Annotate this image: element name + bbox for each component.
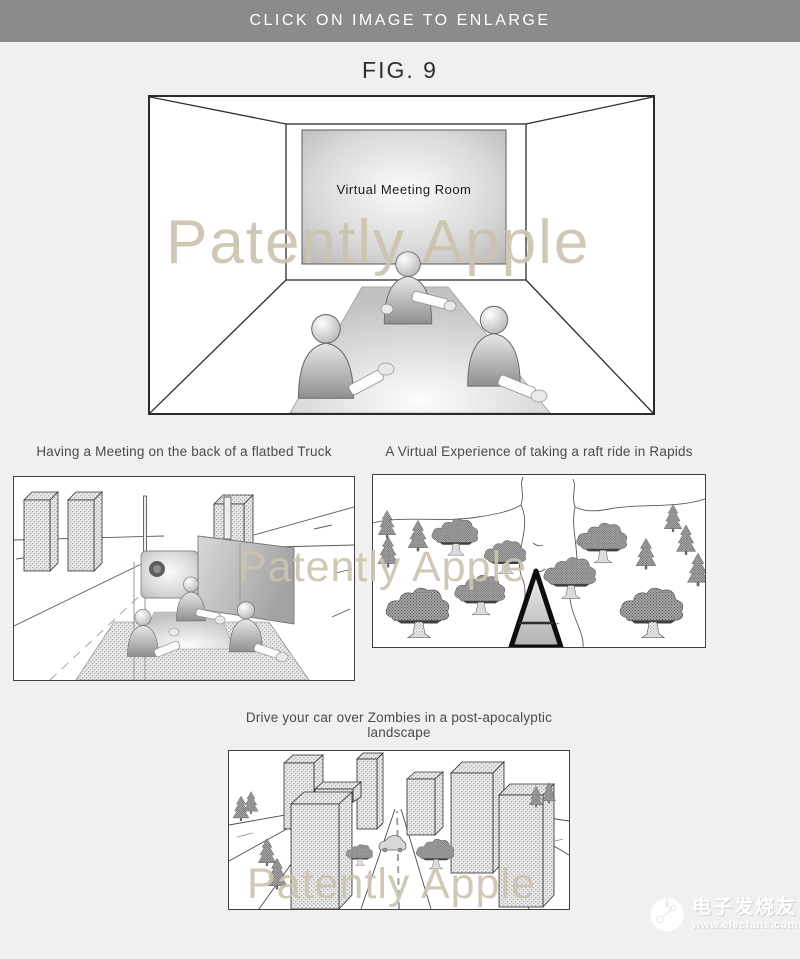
- caption-truck: Having a Meeting on the back of a flatbe…: [13, 444, 355, 459]
- site-name: 电子发烧友: [692, 897, 798, 919]
- site-url: www.elecfans.com: [692, 919, 798, 932]
- zombie-city-drawing: [229, 751, 569, 909]
- building: [284, 753, 554, 909]
- car: [379, 836, 406, 853]
- meeting-room-screen: Virtual Meeting Room: [302, 130, 506, 264]
- patent-figure-flatbed-truck[interactable]: [13, 476, 355, 681]
- patent-figure-zombie-city[interactable]: [228, 750, 570, 910]
- enlarge-banner: CLICK ON IMAGE TO ENLARGE: [0, 0, 800, 42]
- caption-rapids: A Virtual Experience of taking a raft ri…: [372, 444, 706, 459]
- rapids-drawing: [373, 475, 705, 647]
- flatbed-truck-drawing: [14, 477, 354, 680]
- caption-zombies: Drive your car over Zombies in a post-ap…: [228, 710, 570, 740]
- elecfans-logo-icon: [648, 889, 686, 939]
- figure-title: FIG. 9: [0, 57, 800, 84]
- site-watermark-badge: 电子发烧友 www.elecfans.com: [648, 880, 798, 948]
- enlarge-banner-label: CLICK ON IMAGE TO ENLARGE: [249, 12, 550, 30]
- meeting-room-drawing: Virtual Meeting Room: [150, 97, 653, 413]
- patent-figure-rapids[interactable]: [372, 474, 706, 648]
- patent-figure-meeting-room[interactable]: Virtual Meeting Room: [148, 95, 655, 415]
- road-centerline: [397, 811, 399, 909]
- person-figure-right: [468, 306, 521, 386]
- screen-label: Virtual Meeting Room: [337, 182, 472, 197]
